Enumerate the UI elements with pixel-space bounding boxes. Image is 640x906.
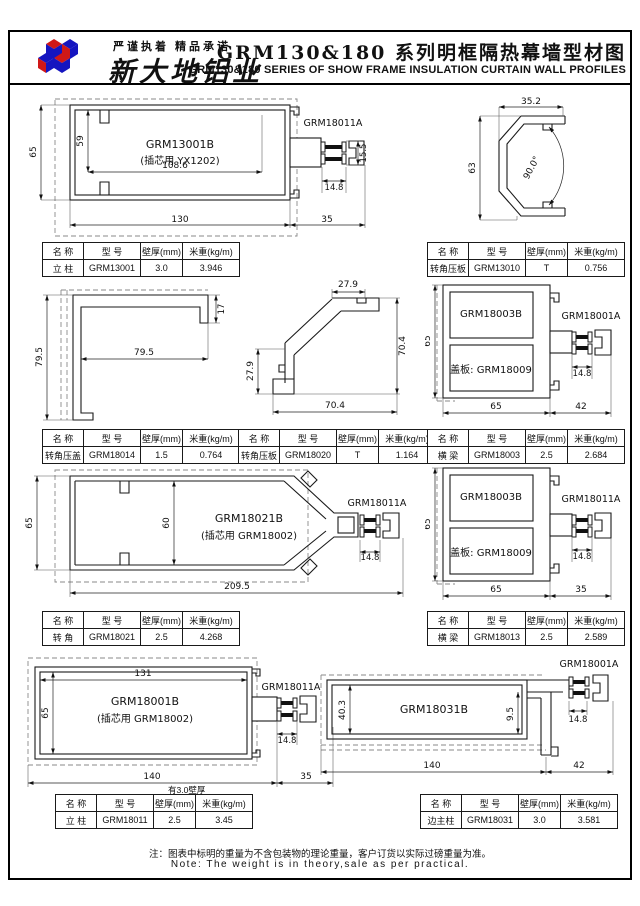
col-header-name: 名 称 (421, 795, 462, 812)
logo-cubes-icon (38, 39, 78, 73)
company-logo (28, 36, 106, 82)
cell-model: GRM13001 (84, 260, 141, 277)
cell-thickness: 1.5 (141, 447, 183, 464)
header-divider (8, 83, 632, 85)
table-row: 转角压板 GRM13010 T 0.756 (428, 260, 625, 277)
col-header-model: 型 号 (84, 243, 141, 260)
col-header-thickness: 壁厚(mm) (141, 243, 183, 260)
cell-thickness: 2.5 (154, 812, 196, 829)
profile-label: GRM18021B (215, 512, 283, 525)
dim-label: 15.5 (359, 144, 369, 163)
dim-label: 140 (423, 761, 440, 771)
col-header-model: 型 号 (469, 243, 526, 260)
dim-label: 79.5 (35, 347, 45, 367)
table-row: 转角压板 GRM18020 T 1.164 (239, 447, 436, 464)
cell-name: 横 梁 (428, 629, 469, 646)
insulation-connector-icon (572, 332, 592, 354)
dim-label: 79.5 (134, 348, 154, 358)
profile-sublabel: (插芯用 GRM18002) (201, 529, 297, 542)
dim-label: 65 (41, 707, 51, 718)
col-header-name: 名 称 (428, 430, 469, 447)
col-header-name: 名 称 (239, 430, 280, 447)
col-header-name: 名 称 (43, 243, 84, 260)
dim-label: 14.8 (569, 715, 588, 725)
part-label: GRM18011A (304, 118, 363, 129)
dim-label: 70.4 (325, 401, 345, 411)
dim-label: 131 (134, 669, 151, 679)
col-header-thickness: 壁厚(mm) (154, 795, 196, 812)
col-header-thickness: 壁厚(mm) (141, 612, 183, 629)
drawing-grm18021b: 65 60 14.8 209.5 GRM18021B (插芯用 GRM18002… (22, 466, 427, 614)
dim-label: 27.9 (338, 280, 358, 290)
cell-model: GRM18020 (280, 447, 337, 464)
profile-label: GRM18001B (111, 695, 179, 708)
cell-name: 横 梁 (428, 447, 469, 464)
dim-label: 60 (162, 517, 172, 529)
part-label: GRM18001A (560, 659, 619, 670)
page-subtitle: GRM130&180 SERIES OF SHOW FRAME INSULATI… (166, 64, 626, 76)
dim-label: 65 (425, 335, 433, 346)
table-row: 边主柱 GRM18031 3.0 3.581 (421, 812, 618, 829)
col-header-weight: 米重(kg/m) (568, 430, 625, 447)
dim-label: 65 (490, 585, 501, 595)
part-label: GRM18011A (562, 494, 621, 505)
spec-table-grm18020: 名 称 型 号 壁厚(mm) 米重(kg/m) 转角压板 GRM18020 T … (238, 429, 436, 464)
col-header-weight: 米重(kg/m) (183, 243, 240, 260)
glass-line (437, 285, 455, 401)
cell-thickness: 2.5 (526, 447, 568, 464)
cell-name: 转 角 (43, 629, 84, 646)
drawing-grm18020: 27.9 27.9 70.4 70.4 (245, 265, 420, 427)
glass-line (437, 468, 455, 584)
insulation-connector-icon (360, 515, 380, 537)
dim-label: 65 (29, 146, 39, 157)
drawing-grm13001b: 65 59 108.6 130 35 15.5 14.8 GRM13001B (… (25, 95, 375, 245)
insulation-connector-icon (321, 142, 346, 164)
spec-table-grm18014: 名 称 型 号 壁厚(mm) 米重(kg/m) 转角压盖 GRM18014 1.… (42, 429, 240, 464)
cell-name: 边主柱 (421, 812, 462, 829)
dim-label: 130 (171, 215, 188, 225)
cell-name: 立 柱 (56, 812, 97, 829)
col-header-weight: 米重(kg/m) (568, 243, 625, 260)
dim-label: 17 (217, 304, 227, 315)
insulation-connector-icon (569, 677, 589, 698)
footer-note-cn: 注：图表中标明的重量为不含包装物的理论重量，客户订货以实际过磅重量为准。 (8, 846, 632, 860)
cell-model: GRM13010 (469, 260, 526, 277)
drawing-grm18001b: 131 65 14.8 140 35 GRM18001B (插芯用 GRM180… (25, 653, 345, 803)
table-row: 立 柱 GRM13001 3.0 3.946 (43, 260, 240, 277)
col-header-name: 名 称 (43, 430, 84, 447)
spec-table-grm18003: 名 称 型 号 壁厚(mm) 米重(kg/m) 横 梁 GRM18003 2.5… (427, 429, 625, 464)
dim-label: 14.8 (278, 736, 297, 746)
cell-thickness: 3.0 (519, 812, 561, 829)
col-header-model: 型 号 (84, 612, 141, 629)
col-header-model: 型 号 (469, 612, 526, 629)
cell-thickness: 3.0 (141, 260, 183, 277)
dim-label: 27.9 (246, 361, 256, 381)
drawing-grm13010: 35.2 63 90.0° (425, 95, 620, 245)
cell-model: GRM18013 (469, 629, 526, 646)
insulation-connector-icon (277, 698, 297, 721)
col-header-weight: 米重(kg/m) (183, 430, 240, 447)
dim-label: 35.2 (521, 97, 541, 107)
col-header-weight: 米重(kg/m) (196, 795, 253, 812)
insulation-connector-icon (572, 515, 592, 537)
dim-label: 40.3 (338, 700, 348, 720)
dim-label: 14.8 (573, 369, 592, 379)
cell-weight: 3.45 (196, 812, 253, 829)
col-header-weight: 米重(kg/m) (561, 795, 618, 812)
spec-table-grm18021: 名 称 型 号 壁厚(mm) 米重(kg/m) 转 角 GRM18021 2.5… (42, 611, 240, 646)
cell-model: GRM18014 (84, 447, 141, 464)
dim-label: 65 (25, 517, 35, 528)
cell-weight: 3.581 (561, 812, 618, 829)
table-row: 横 梁 GRM18013 2.5 2.589 (428, 629, 625, 646)
cell-model: GRM18021 (84, 629, 141, 646)
dim-label: 14.8 (361, 553, 380, 563)
col-header-model: 型 号 (462, 795, 519, 812)
part-label: GRM18001A (562, 311, 621, 322)
cell-thickness: T (526, 260, 568, 277)
col-header-name: 名 称 (56, 795, 97, 812)
dim-label: 70.4 (398, 336, 408, 356)
cell-thickness: 2.5 (526, 629, 568, 646)
col-header-model: 型 号 (469, 430, 526, 447)
page-title: GRM130&180 系列明框隔热幕墙型材图 (196, 38, 626, 65)
cell-weight: 2.589 (568, 629, 625, 646)
cover-label: 盖板: GRM18009 (450, 546, 532, 559)
cell-name: 转角压板 (239, 447, 280, 464)
dim-label: 9.5 (506, 707, 516, 721)
dim-label: 35 (300, 772, 311, 782)
col-header-thickness: 壁厚(mm) (141, 430, 183, 447)
drawing-grm18003: 65 14.8 65 42 GRM18003B 盖板: GRM18009 GRM… (425, 283, 635, 428)
cell-weight: 4.268 (183, 629, 240, 646)
spec-table-grm18013: 名 称 型 号 壁厚(mm) 米重(kg/m) 横 梁 GRM18013 2.5… (427, 611, 625, 646)
col-header-thickness: 壁厚(mm) (526, 243, 568, 260)
table-row: 横 梁 GRM18003 2.5 2.684 (428, 447, 625, 464)
profile-label: GRM18003B (460, 309, 522, 320)
spec-table-grm18031: 名 称 型 号 壁厚(mm) 米重(kg/m) 边主柱 GRM18031 3.0… (420, 794, 618, 829)
dim-label: 42 (575, 402, 586, 412)
col-header-thickness: 壁厚(mm) (526, 430, 568, 447)
col-header-weight: 米重(kg/m) (568, 612, 625, 629)
dim-label: 35 (575, 585, 586, 595)
part-label: GRM18011A (262, 682, 321, 693)
drawing-grm18031b: 40.3 9.5 14.8 140 42 GRM18031B GRM18001A (316, 653, 636, 793)
dim-label: 65 (490, 402, 501, 412)
drawing-grm18013: 65 14.8 65 35 GRM18003B 盖板: GRM18009 GRM… (425, 466, 635, 611)
col-header-model: 型 号 (84, 430, 141, 447)
cell-name: 转角压板 (428, 260, 469, 277)
cell-model: GRM18031 (462, 812, 519, 829)
dim-label: 63 (468, 162, 478, 173)
drawing-grm18014: 79.5 79.5 17 (30, 285, 240, 427)
dim-label: 14.8 (573, 552, 592, 562)
cell-weight: 0.764 (183, 447, 240, 464)
cell-name: 立 柱 (43, 260, 84, 277)
cell-thickness: T (337, 447, 379, 464)
table-row: 立 柱 GRM18011 2.5 3.45 (56, 812, 253, 829)
dim-label: 140 (143, 772, 160, 782)
col-header-thickness: 壁厚(mm) (526, 612, 568, 629)
profile-label: GRM18031B (400, 703, 468, 716)
profile-sublabel: (插芯用 GRM18002) (97, 712, 193, 725)
spec-table-grm13001: 名 称 型 号 壁厚(mm) 米重(kg/m) 立 柱 GRM13001 3.0… (42, 242, 240, 277)
profile-label: GRM13001B (146, 138, 214, 151)
profile-sublabel: (插芯用 YX1202) (140, 154, 219, 167)
part-label: GRM18011A (348, 498, 407, 509)
footer-note-en: Note: The weight is in theory,sale as pe… (8, 859, 632, 870)
col-header-thickness: 壁厚(mm) (337, 430, 379, 447)
table-row: 转角压盖 GRM18014 1.5 0.764 (43, 447, 240, 464)
dim-label: 65 (425, 518, 433, 529)
col-header-model: 型 号 (280, 430, 337, 447)
dim-label: 209.5 (224, 582, 250, 592)
col-header-model: 型 号 (97, 795, 154, 812)
col-header-name: 名 称 (428, 243, 469, 260)
dim-label: 35 (321, 215, 332, 225)
col-header-name: 名 称 (43, 612, 84, 629)
angle-label: 90.0° (522, 155, 542, 181)
cell-name: 转角压盖 (43, 447, 84, 464)
col-header-name: 名 称 (428, 612, 469, 629)
cell-model: GRM18011 (97, 812, 154, 829)
dim-label: 42 (573, 761, 584, 771)
cell-model: GRM18003 (469, 447, 526, 464)
spec-table-grm13010: 名 称 型 号 壁厚(mm) 米重(kg/m) 转角压板 GRM13010 T … (427, 242, 625, 277)
cell-weight: 0.756 (568, 260, 625, 277)
cover-label: 盖板: GRM18009 (450, 363, 532, 376)
catalog-page: 严谨执着 精品承诺 新大地铝业 GRM130&180 系列明框隔热幕墙型材图 G… (0, 0, 640, 906)
spec-table-grm18011: 名 称 型 号 壁厚(mm) 米重(kg/m) 立 柱 GRM18011 2.5… (55, 794, 253, 829)
table-row: 转 角 GRM18021 2.5 4.268 (43, 629, 240, 646)
col-header-thickness: 壁厚(mm) (519, 795, 561, 812)
cell-weight: 3.946 (183, 260, 240, 277)
col-header-weight: 米重(kg/m) (183, 612, 240, 629)
dim-label: 59 (76, 135, 86, 147)
dim-label: 14.8 (325, 183, 344, 193)
profile-label: GRM18003B (460, 492, 522, 503)
cell-weight: 2.684 (568, 447, 625, 464)
cell-thickness: 2.5 (141, 629, 183, 646)
